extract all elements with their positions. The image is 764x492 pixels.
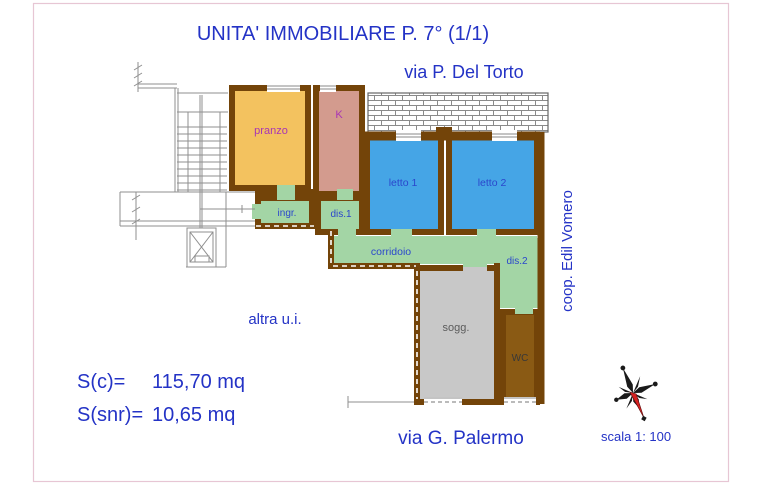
room-wc-label: WC (512, 353, 529, 364)
room-ingresso-label: ingr. (278, 208, 297, 219)
balcony-hatch (368, 93, 548, 132)
street-top-label: via P. Del Torto (404, 62, 523, 82)
entrance-door-mark (200, 205, 255, 213)
floor-plan-svg: UNITA' IMMOBILIARE P. 7° (1/1) via P. De… (0, 0, 764, 492)
compass-rose-icon (603, 356, 663, 421)
area-nonresidential-value: 10,65 mq (152, 404, 235, 426)
area-commercial-value: 115,70 mq (152, 371, 245, 393)
room-dis2-label: dis.2 (506, 256, 528, 267)
street-bottom-label: via G. Palermo (398, 428, 524, 449)
cooperative-label: coop. Edil Vomero (559, 190, 576, 312)
room-dis2 (497, 238, 540, 308)
room-soggiorno-label: sogg. (443, 322, 470, 334)
room-dis1-label: dis.1 (330, 209, 352, 220)
room-pranzo-label: pranzo (254, 125, 288, 137)
room-kitchen (316, 88, 362, 194)
page-title: UNITA' IMMOBILIARE P. 7° (1/1) (197, 23, 489, 45)
room-pranzo (232, 88, 308, 188)
room-soggiorno (417, 268, 497, 402)
other-unit-label: altra u.i. (248, 311, 301, 328)
room-letto2-label: letto 2 (478, 177, 507, 189)
area-commercial-label: S(c)= (77, 371, 125, 393)
floorplan-page: UNITA' IMMOBILIARE P. 7° (1/1) via P. De… (0, 0, 764, 492)
property-line (348, 396, 414, 408)
room-letto1-label: letto 1 (389, 177, 418, 189)
room-corridoio-label: corridoio (371, 246, 411, 258)
scale-label: scala 1: 100 (601, 429, 671, 444)
elevator (187, 228, 216, 267)
room-kitchen-label: K (335, 109, 343, 121)
area-nonresidential-label: S(snr)= (77, 404, 143, 426)
